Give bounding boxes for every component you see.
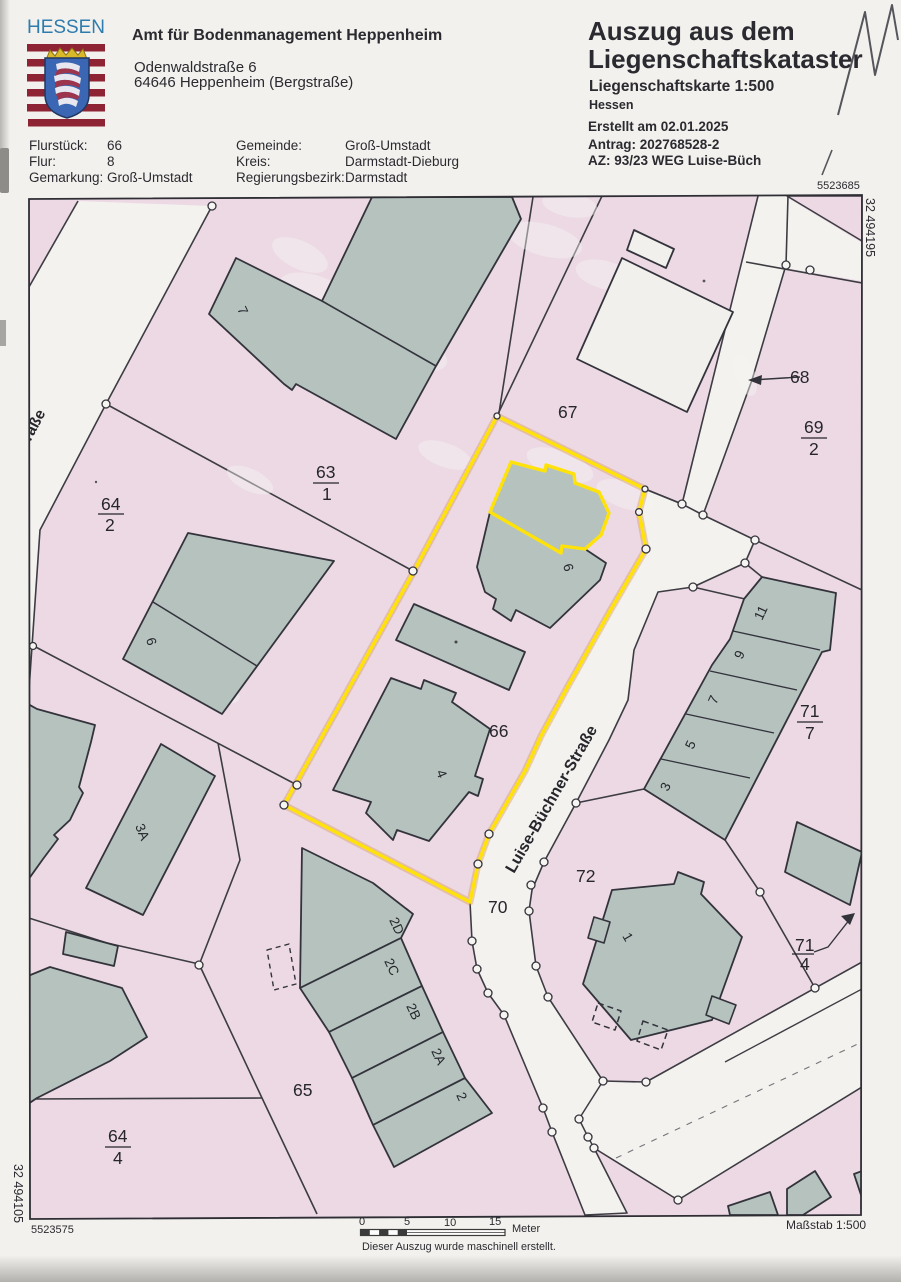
svg-text:2: 2 [809, 439, 819, 459]
svg-text:72: 72 [576, 866, 595, 886]
svg-text:67: 67 [558, 402, 577, 422]
svg-text:69: 69 [804, 417, 823, 437]
svg-text:71: 71 [800, 701, 819, 721]
svg-text:65: 65 [293, 1080, 312, 1100]
svg-text:1: 1 [322, 484, 332, 504]
svg-text:63: 63 [316, 462, 335, 482]
svg-text:64: 64 [108, 1126, 128, 1146]
svg-text:68: 68 [790, 367, 809, 387]
svg-text:70: 70 [488, 897, 508, 917]
svg-text:4: 4 [113, 1148, 123, 1168]
svg-text:71: 71 [795, 935, 814, 955]
svg-text:66: 66 [489, 721, 508, 741]
svg-text:7: 7 [805, 723, 815, 743]
svg-text:64: 64 [101, 494, 121, 514]
svg-text:2: 2 [105, 515, 115, 535]
svg-text:4: 4 [800, 954, 810, 974]
